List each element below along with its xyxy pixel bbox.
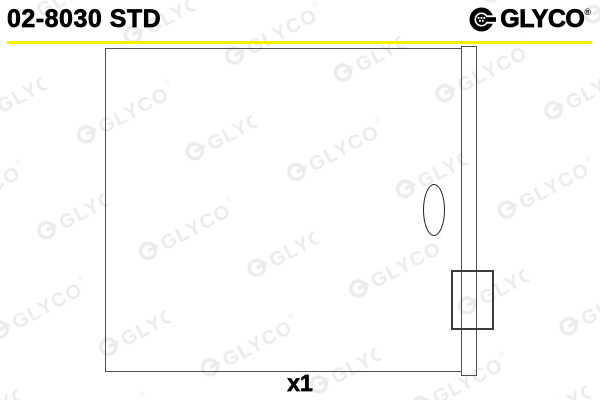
bearing-shell-outline — [105, 48, 462, 372]
part-number: 02-8030 STD — [7, 5, 161, 34]
locating-lug-outline — [451, 270, 494, 330]
brand-name: GLYCO — [500, 7, 584, 32]
brand-logo: GLYCO ® — [469, 6, 591, 33]
glyco-gear-icon — [469, 6, 496, 33]
catalog-page: GLYCO ® GLYCO ® 02-8030 STD — [0, 0, 600, 400]
oil-hole-ellipse — [423, 184, 445, 236]
yellow-divider — [7, 41, 592, 44]
registered-trademark-icon: ® — [584, 7, 591, 17]
quantity-label: x1 — [270, 372, 330, 395]
